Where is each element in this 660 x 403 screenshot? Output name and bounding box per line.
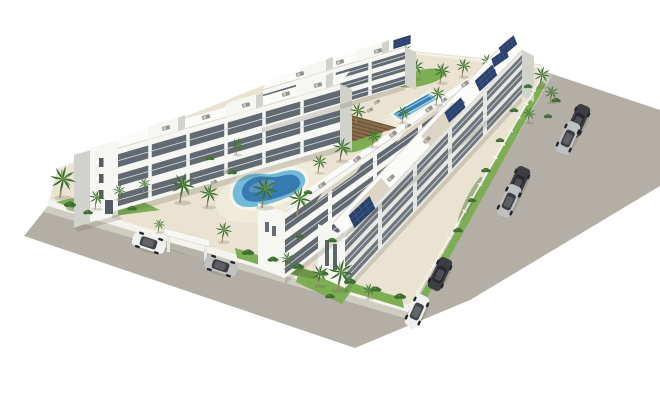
- pergola-deck: [300, 116, 396, 144]
- roof-furniture-icon: [296, 71, 305, 77]
- roof-furniture-icon: [282, 91, 291, 97]
- car-icon: [129, 230, 169, 258]
- car-icon: [503, 163, 534, 203]
- courtyard-pavement: [48, 50, 546, 312]
- architectural-render-image: [0, 0, 660, 403]
- palm-tree-icon: [523, 107, 536, 124]
- palm-tree-icon: [138, 177, 151, 194]
- car-icon: [425, 254, 456, 294]
- building-row-outer-right: [318, 37, 534, 288]
- palm-tree-icon: [433, 62, 450, 85]
- palm-tree-icon: [328, 259, 354, 294]
- solar-panel-icon: [472, 64, 500, 91]
- palm-tree-icon: [456, 58, 472, 79]
- shrub-icon: [415, 306, 425, 310]
- shrub-icon: [318, 271, 329, 276]
- shrub-icon: [64, 201, 76, 207]
- right-road-fence: [408, 66, 548, 310]
- shrub-icon: [524, 84, 532, 88]
- back-fence: [60, 52, 542, 168]
- solar-panel-icon: [489, 49, 511, 68]
- roof-furniture-icon: [350, 214, 359, 222]
- palm-tree-icon: [399, 43, 412, 60]
- roof-furniture-icon: [374, 99, 381, 105]
- shrub-icon: [371, 287, 382, 292]
- shrub-icon: [127, 206, 137, 210]
- palm-tree-icon: [153, 218, 165, 234]
- roof-furniture-icon: [162, 125, 171, 131]
- window-bands: [112, 90, 340, 208]
- shrub-icon: [496, 138, 504, 142]
- car-icon: [201, 253, 241, 281]
- roof-furniture-layer: [162, 48, 497, 222]
- palm-tree-icon: [544, 85, 559, 104]
- roof-furniture-icon: [206, 190, 213, 195]
- shrub-icon: [551, 98, 561, 102]
- roof-furniture-icon: [425, 105, 434, 113]
- perimeter-wall: [48, 199, 408, 312]
- roof-furniture-icon: [387, 174, 396, 182]
- window-bands: [285, 60, 512, 274]
- palm-tree-icon: [349, 102, 366, 124]
- stair-tower: [74, 140, 118, 228]
- shrub-icon: [327, 238, 337, 242]
- roof-furniture-icon: [405, 123, 412, 129]
- palm-tree-icon: [363, 283, 376, 300]
- building-row-back-right: [262, 35, 416, 128]
- roof-furniture-icon: [336, 59, 345, 65]
- palm-tree-icon: [396, 105, 410, 124]
- roof-furniture-icon: [461, 80, 470, 88]
- palm-tree-icon: [480, 53, 494, 72]
- roof-furniture-icon: [223, 170, 229, 175]
- palm-tree-icon: [332, 137, 352, 163]
- kidney-pool: [209, 149, 336, 235]
- roof-furniture-icon: [441, 97, 448, 103]
- shrub-icon: [394, 293, 406, 299]
- roof-furniture-icon: [202, 114, 211, 120]
- palm-tree-icon: [385, 54, 402, 77]
- palm-tree-icon: [215, 221, 232, 243]
- roof-furniture-icon: [242, 102, 251, 108]
- roof-furniture-icon: [314, 82, 323, 88]
- palm-tree-icon: [199, 183, 219, 209]
- lawn-shading: [66, 175, 485, 281]
- palm-tree-icon: [280, 251, 294, 270]
- car-icon: [494, 181, 525, 221]
- entrance-canopy: [164, 228, 210, 261]
- building-row-back-left: [74, 71, 352, 228]
- palm-tree-icon: [113, 184, 126, 201]
- shrub-icon: [242, 249, 254, 255]
- solar-panel-icon: [496, 35, 519, 56]
- building-row-inner-right: [258, 41, 522, 278]
- roof-furniture-icon: [318, 181, 327, 189]
- palm-tree-icon: [311, 264, 329, 288]
- car-icon: [563, 101, 594, 141]
- shrub-icon: [481, 168, 491, 172]
- shrub-icon: [344, 278, 356, 284]
- shrub-icon: [304, 190, 312, 194]
- shrub-icon: [510, 108, 518, 112]
- palm-tree-icon: [50, 166, 76, 201]
- roof-terraces: [316, 104, 443, 202]
- parked-cars-layer: [129, 101, 594, 331]
- roof-furniture-icon: [374, 48, 383, 54]
- shrub-icon: [83, 210, 93, 214]
- roof-furniture-icon: [488, 68, 497, 76]
- roof-furniture-icon: [457, 100, 466, 108]
- shrub-icon: [206, 156, 214, 160]
- palm-trees-back-layer: [367, 43, 495, 85]
- palm-tree-icon: [288, 187, 311, 218]
- white-background: [0, 0, 660, 403]
- roof-furniture-icon: [367, 107, 374, 113]
- roof-furniture-icon: [211, 180, 218, 185]
- building-shadows: [74, 85, 522, 294]
- perimeter-road: [24, 72, 660, 348]
- shrub-icon: [227, 170, 237, 174]
- shrub-icon: [296, 234, 304, 238]
- shrub-icon: [544, 114, 552, 118]
- site-plan-svg: [0, 0, 660, 403]
- palm-tree-icon: [367, 47, 380, 64]
- palm-tree-icon: [230, 137, 244, 156]
- palm-tree-icon: [252, 176, 278, 211]
- palm-tree-icon: [312, 154, 328, 175]
- lawns: [56, 65, 546, 310]
- palm-tree-icon: [170, 172, 195, 205]
- palm-tree-icon: [533, 66, 550, 89]
- shrub-icon: [268, 257, 279, 262]
- car-icon: [553, 118, 584, 158]
- window-bands: [345, 55, 522, 285]
- window-bands: [262, 52, 405, 127]
- shrub-icon: [453, 228, 463, 232]
- palm-tree-icon: [407, 58, 424, 81]
- roof-boxes: [148, 72, 333, 140]
- solar-panels-layer: [345, 35, 519, 228]
- roof-terraces: [349, 102, 462, 222]
- palm-tree-icon: [89, 189, 105, 210]
- palm-tree-icon: [430, 86, 446, 107]
- solar-panel-icon: [442, 97, 468, 122]
- shrub-icon: [325, 294, 335, 298]
- roof-furniture-icon: [389, 130, 398, 138]
- roof-boxes: [300, 40, 389, 79]
- solar-panel-icon: [345, 196, 378, 228]
- shrub-icon: [468, 198, 476, 202]
- solar-panel-icon: [391, 35, 413, 49]
- palm-tree-icon: [366, 128, 382, 149]
- roof-furniture-icon: [353, 155, 362, 163]
- sidewalk: [44, 72, 552, 318]
- palm-trees-layer: [50, 66, 559, 300]
- shrub-icon: [292, 263, 304, 269]
- roof-furniture-icon: [423, 136, 432, 144]
- car-icon: [402, 291, 433, 331]
- rectangular-pool: [384, 90, 448, 130]
- shrub-icon: [439, 258, 449, 262]
- shrubs-layer: [64, 84, 561, 310]
